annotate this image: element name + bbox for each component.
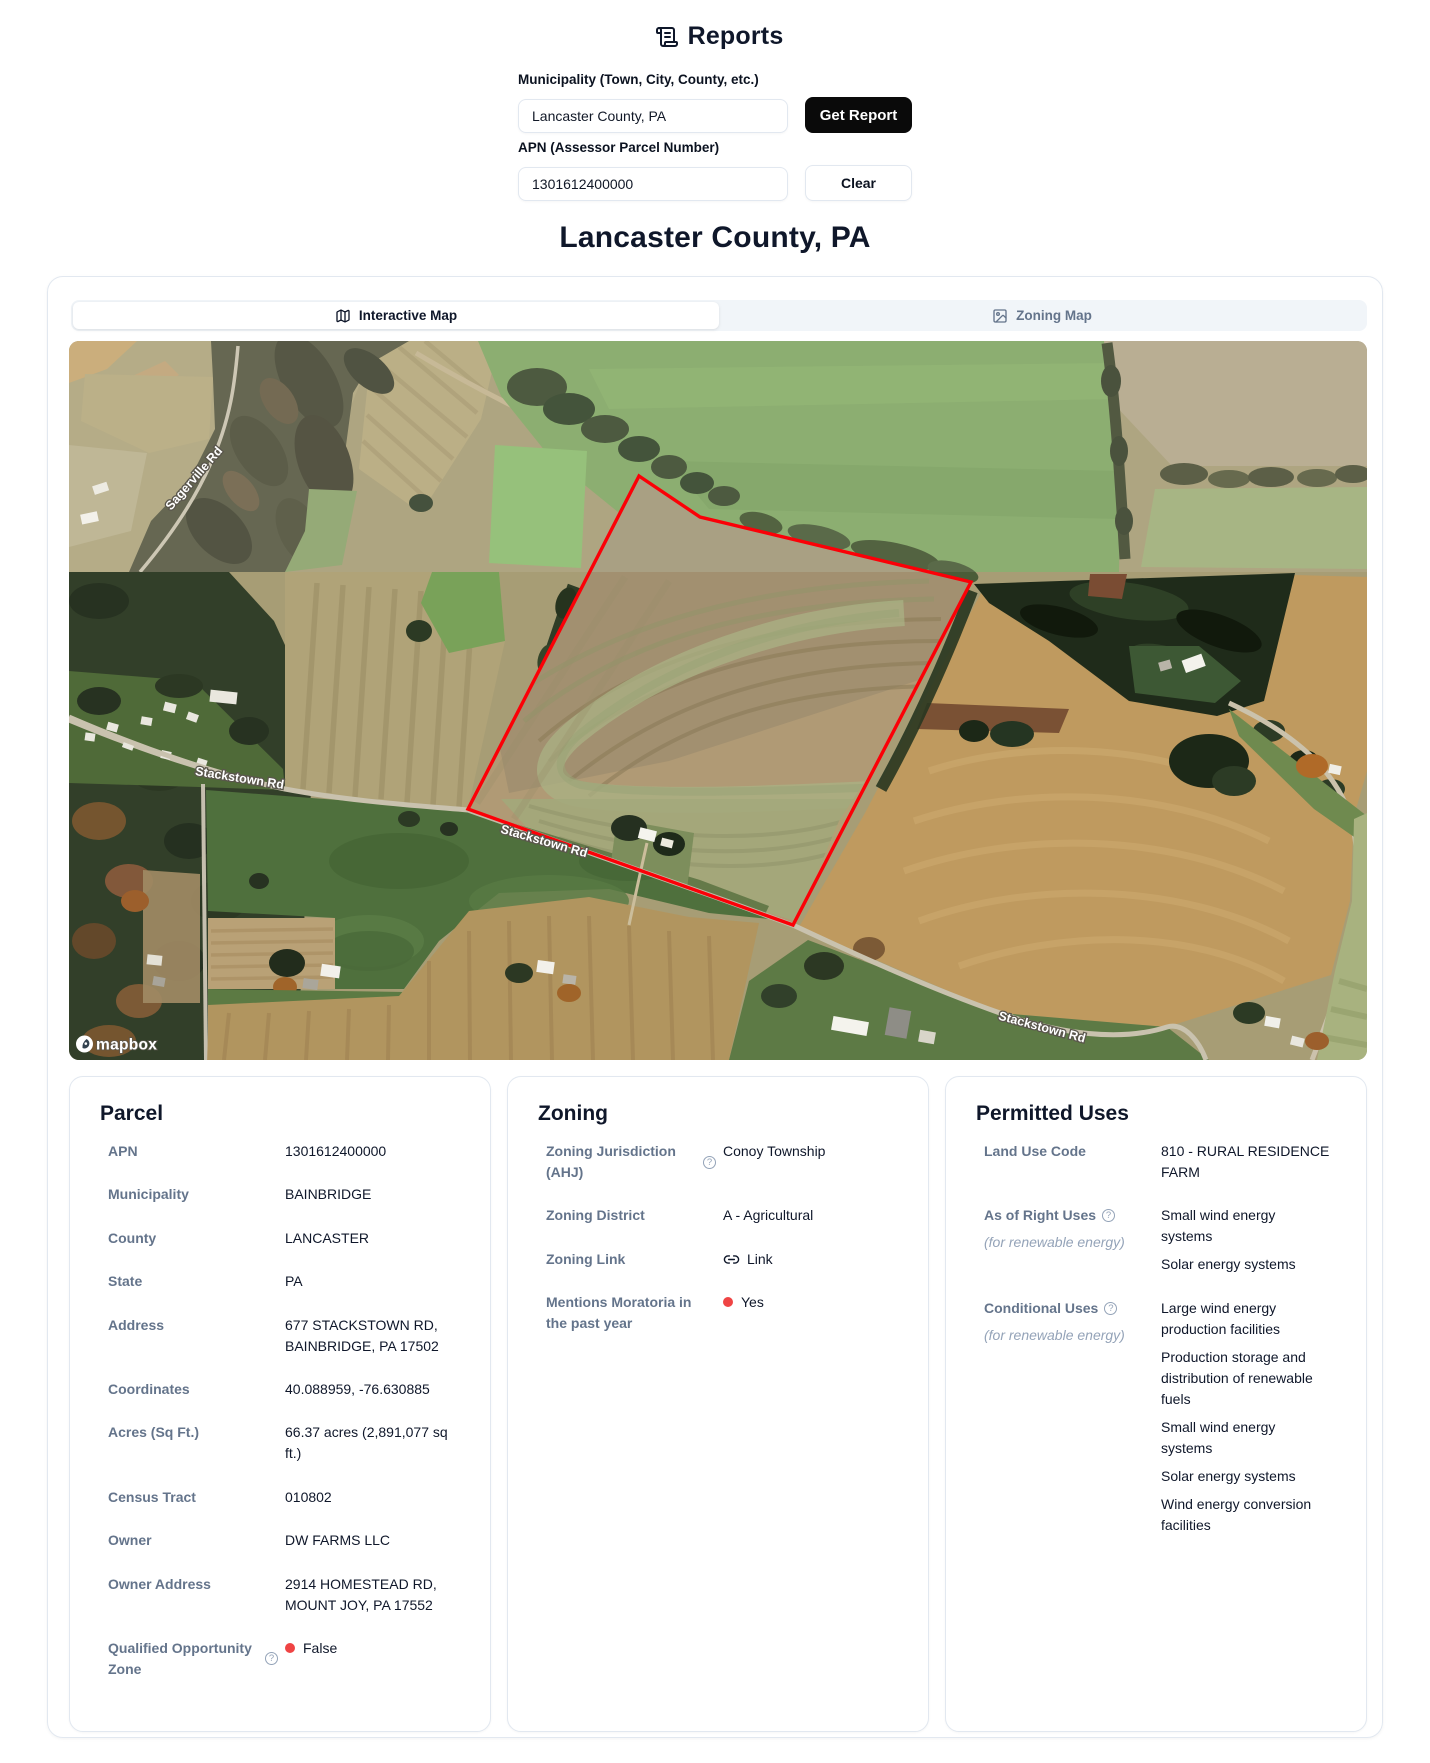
svg-text:mapbox: mapbox [96,1037,157,1054]
